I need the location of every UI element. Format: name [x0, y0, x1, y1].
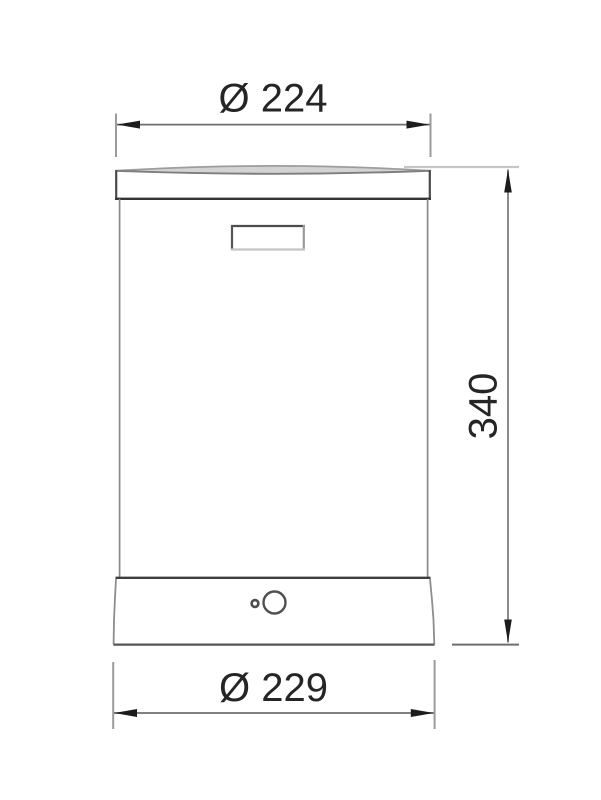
svg-text:340: 340	[462, 373, 506, 440]
svg-text:Ø 224: Ø 224	[219, 77, 328, 121]
svg-text:Ø 229: Ø 229	[219, 666, 328, 710]
